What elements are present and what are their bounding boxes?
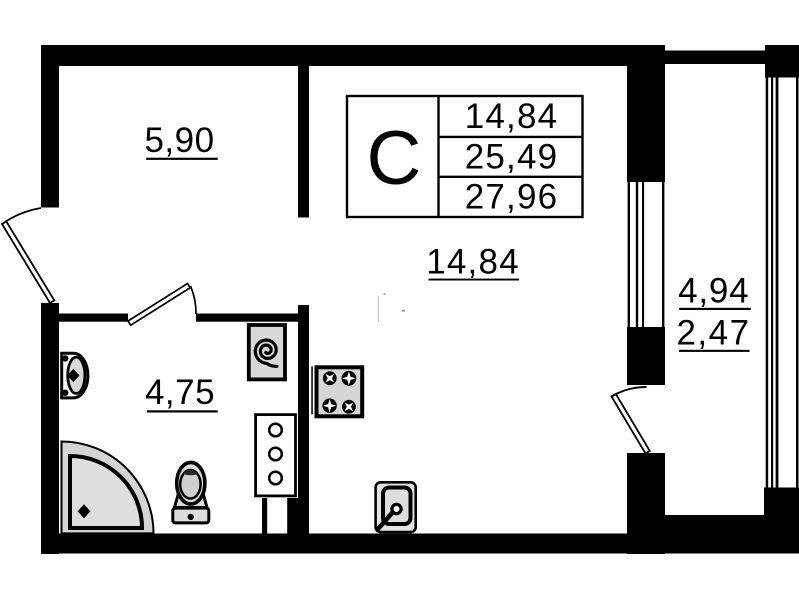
svg-text:2,47: 2,47 — [676, 314, 750, 353]
svg-text:4,75: 4,75 — [145, 373, 215, 412]
svg-text:27,96: 27,96 — [465, 177, 559, 216]
svg-text:14,84: 14,84 — [465, 97, 559, 136]
svg-text:5,90: 5,90 — [144, 121, 214, 160]
svg-text:14,84: 14,84 — [426, 243, 520, 282]
svg-text:4,94: 4,94 — [678, 271, 749, 310]
svg-text:25,49: 25,49 — [465, 137, 559, 176]
svg-text:С: С — [367, 116, 422, 201]
